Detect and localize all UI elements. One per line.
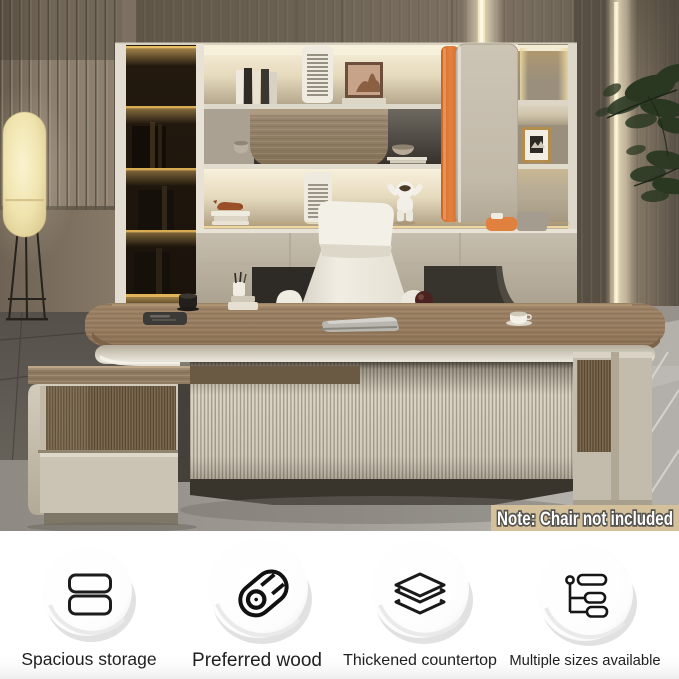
svg-text:Preferred wood: Preferred wood xyxy=(192,650,322,671)
svg-text:Multiple sizes available: Multiple sizes available xyxy=(509,653,660,669)
svg-text:Spacious storage: Spacious storage xyxy=(21,649,156,669)
svg-text:Note: Chair not included: Note: Chair not included xyxy=(497,509,673,530)
svg-text:Thickened countertop: Thickened countertop xyxy=(343,652,497,669)
